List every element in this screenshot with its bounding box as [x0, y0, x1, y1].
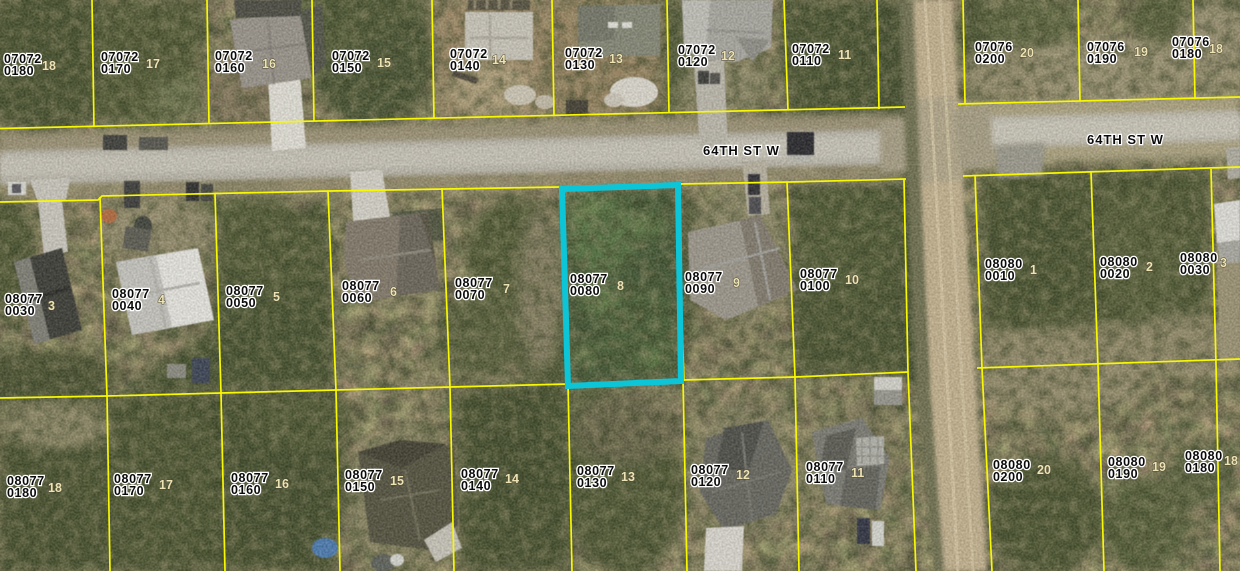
svg-text:18: 18 — [48, 481, 62, 495]
svg-text:14: 14 — [505, 472, 519, 486]
svg-text:4: 4 — [158, 293, 165, 307]
svg-text:16: 16 — [275, 477, 289, 491]
svg-text:1: 1 — [1030, 263, 1037, 277]
svg-text:18: 18 — [1209, 42, 1223, 56]
svg-text:6: 6 — [390, 285, 397, 299]
svg-text:19: 19 — [1152, 460, 1166, 474]
svg-text:18: 18 — [1224, 454, 1238, 468]
svg-text:10: 10 — [845, 273, 859, 287]
svg-text:13: 13 — [609, 52, 623, 66]
svg-text:16: 16 — [262, 57, 276, 71]
svg-text:11: 11 — [851, 466, 864, 480]
svg-text:12: 12 — [721, 49, 735, 63]
svg-text:14: 14 — [492, 53, 506, 67]
svg-text:20: 20 — [1037, 463, 1051, 477]
svg-text:5: 5 — [273, 290, 280, 304]
svg-text:3: 3 — [1220, 256, 1227, 270]
svg-text:11: 11 — [838, 48, 851, 62]
svg-text:18: 18 — [42, 59, 56, 73]
svg-text:13: 13 — [621, 470, 635, 484]
svg-text:17: 17 — [159, 478, 173, 492]
svg-text:15: 15 — [377, 56, 391, 70]
svg-text:12: 12 — [736, 468, 750, 482]
svg-text:64TH ST W: 64TH ST W — [1087, 132, 1164, 147]
svg-text:20: 20 — [1020, 46, 1034, 60]
svg-text:8: 8 — [617, 279, 624, 293]
svg-text:3: 3 — [48, 299, 55, 313]
svg-text:2: 2 — [1146, 260, 1153, 274]
svg-text:7: 7 — [503, 282, 510, 296]
svg-text:9: 9 — [733, 276, 740, 290]
svg-text:64TH ST W: 64TH ST W — [703, 143, 780, 158]
svg-text:19: 19 — [1134, 45, 1148, 59]
svg-text:17: 17 — [146, 57, 160, 71]
svg-text:15: 15 — [390, 474, 404, 488]
